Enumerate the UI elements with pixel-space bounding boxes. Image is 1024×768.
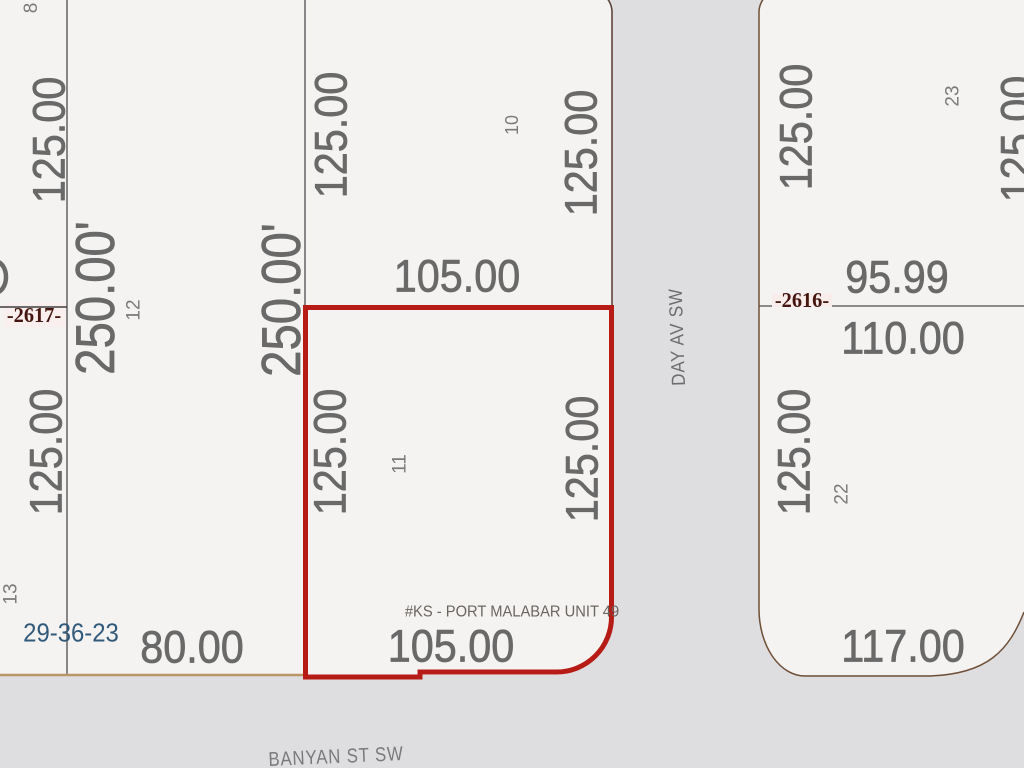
svg-text:-2616-: -2616-: [775, 290, 829, 312]
svg-text:105.00: 105.00: [394, 252, 521, 302]
svg-text:125.00: 125.00: [22, 389, 72, 516]
svg-text:125.00: 125.00: [557, 90, 607, 217]
svg-text:13: 13: [1, 583, 22, 604]
svg-text:125.00: 125.00: [772, 64, 822, 191]
svg-text:250.00': 250.00': [64, 221, 125, 375]
svg-text:22: 22: [832, 483, 853, 504]
svg-text:95.99: 95.99: [845, 253, 949, 303]
svg-text:125.00: 125.00: [25, 77, 75, 204]
svg-text:117.00: 117.00: [841, 622, 965, 672]
svg-text:125.00: 125.00: [993, 76, 1024, 203]
svg-text:DAY AV SW: DAY AV SW: [665, 288, 689, 386]
svg-text:125.00: 125.00: [558, 396, 608, 523]
svg-text:105.00: 105.00: [388, 622, 515, 672]
svg-text:23: 23: [943, 85, 964, 106]
svg-text:12: 12: [124, 299, 145, 320]
svg-text:250.00': 250.00': [250, 223, 311, 377]
svg-text:80.00: 80.00: [140, 623, 244, 673]
svg-text:#KS - PORT MALABAR UNIT 49: #KS - PORT MALABAR UNIT 49: [405, 603, 619, 620]
svg-text:-2617-: -2617-: [7, 305, 61, 327]
svg-text:8: 8: [21, 3, 42, 14]
svg-text:10: 10: [502, 115, 522, 135]
svg-text:29-36-23: 29-36-23: [23, 618, 119, 647]
svg-text:11: 11: [390, 454, 411, 474]
svg-text:125.00: 125.00: [306, 389, 356, 516]
svg-text:110.00: 110.00: [841, 314, 965, 364]
svg-text:125.00: 125.00: [770, 389, 820, 516]
svg-text:125.00: 125.00: [307, 72, 357, 199]
